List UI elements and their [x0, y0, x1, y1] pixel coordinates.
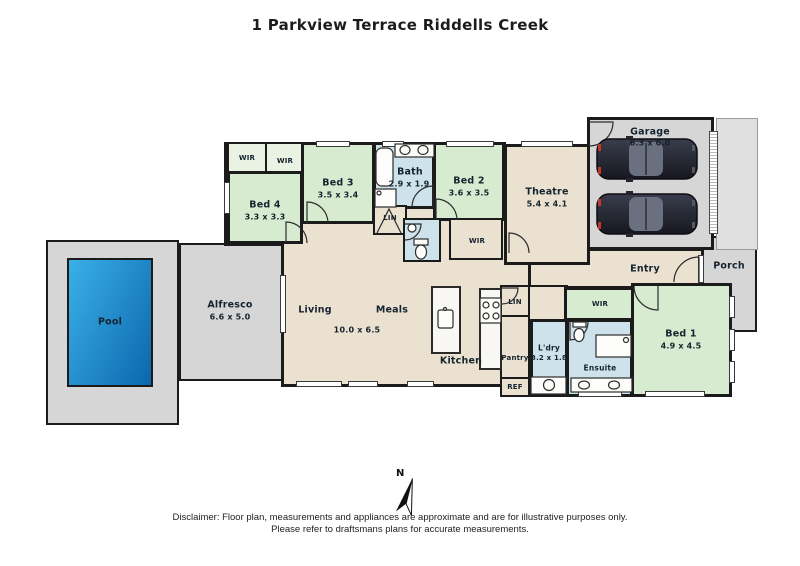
theatre-label: Theatre [525, 187, 568, 198]
window [729, 361, 735, 383]
wir-bed4-label: WIR [239, 154, 255, 162]
laundry-dims: 3.2 x 1.8 [531, 354, 567, 362]
bed2-label: Bed 2 [453, 176, 484, 187]
pool-label: Pool [98, 317, 122, 328]
kitchen-label: Kitchen [440, 356, 482, 367]
disclaimer-line2: Please refer to draftsmans plans for acc… [0, 524, 800, 536]
window [382, 141, 404, 147]
north-needle [388, 476, 428, 516]
laundry-nook [528, 285, 568, 323]
window [407, 381, 434, 387]
bath-dims: 2.9 x 1.9 [389, 180, 430, 189]
north-arrow-icon: N [388, 466, 428, 518]
living-meals-dims: 10.0 x 6.5 [334, 326, 381, 335]
room-pantry [500, 315, 530, 379]
bath-label: Bath [397, 167, 423, 178]
sliding-door [280, 275, 286, 333]
window [296, 381, 342, 387]
bed3-dims: 3.5 x 3.4 [318, 191, 359, 200]
bed1-label: Bed 1 [665, 329, 696, 340]
bed4-label: Bed 4 [249, 200, 280, 211]
disclaimer-line1: Disclaimer: Floor plan, measurements and… [0, 512, 800, 524]
floorplan-page: 1 Parkview Terrace Riddells Creek [0, 0, 800, 566]
bed2-dims: 3.6 x 3.5 [449, 189, 490, 198]
room-bed1 [631, 283, 732, 397]
window [578, 391, 622, 397]
entry-label: Entry [630, 264, 660, 275]
room-ensuite [566, 319, 633, 397]
theatre-dims: 5.4 x 4.1 [527, 200, 568, 209]
window [348, 381, 378, 387]
kitchen-island [431, 286, 461, 354]
wir-bed3-label: WIR [277, 157, 293, 165]
window [224, 182, 230, 214]
pantry-label: Pantry [501, 354, 528, 362]
garage-label: Garage [630, 127, 670, 138]
wir-hall-label: WIR [469, 237, 485, 245]
driveway [716, 118, 758, 250]
meals-label: Meals [376, 305, 408, 316]
living-label: Living [298, 305, 332, 316]
ensuite-label: Ensuite [584, 364, 617, 373]
laundry-label: L'dry [538, 344, 560, 353]
window [729, 329, 735, 351]
garage-door [709, 131, 718, 234]
linen-hall-label: LIN [383, 214, 397, 222]
fridge-label: REF [507, 383, 523, 391]
room-wc [403, 218, 441, 262]
bed3-label: Bed 3 [322, 178, 353, 189]
kitchen-counter [479, 288, 502, 370]
alfresco-dims: 6.6 x 5.0 [210, 313, 251, 322]
bed1-dims: 4.9 x 4.5 [661, 342, 702, 351]
window [645, 391, 705, 397]
alfresco-label: Alfresco [207, 300, 252, 311]
front-door-opening [698, 255, 704, 283]
porch-label: Porch [713, 261, 745, 272]
disclaimer: Disclaimer: Floor plan, measurements and… [0, 512, 800, 536]
window [521, 141, 573, 147]
window [316, 141, 350, 147]
bed4-dims: 3.3 x 3.3 [245, 213, 286, 222]
linen-kitchen-label: LIN [508, 298, 522, 306]
garage-dims: 6.3 x 6.0 [630, 139, 671, 148]
window [729, 296, 735, 318]
window [446, 141, 494, 147]
wir-bed1-label: WIR [592, 300, 608, 308]
